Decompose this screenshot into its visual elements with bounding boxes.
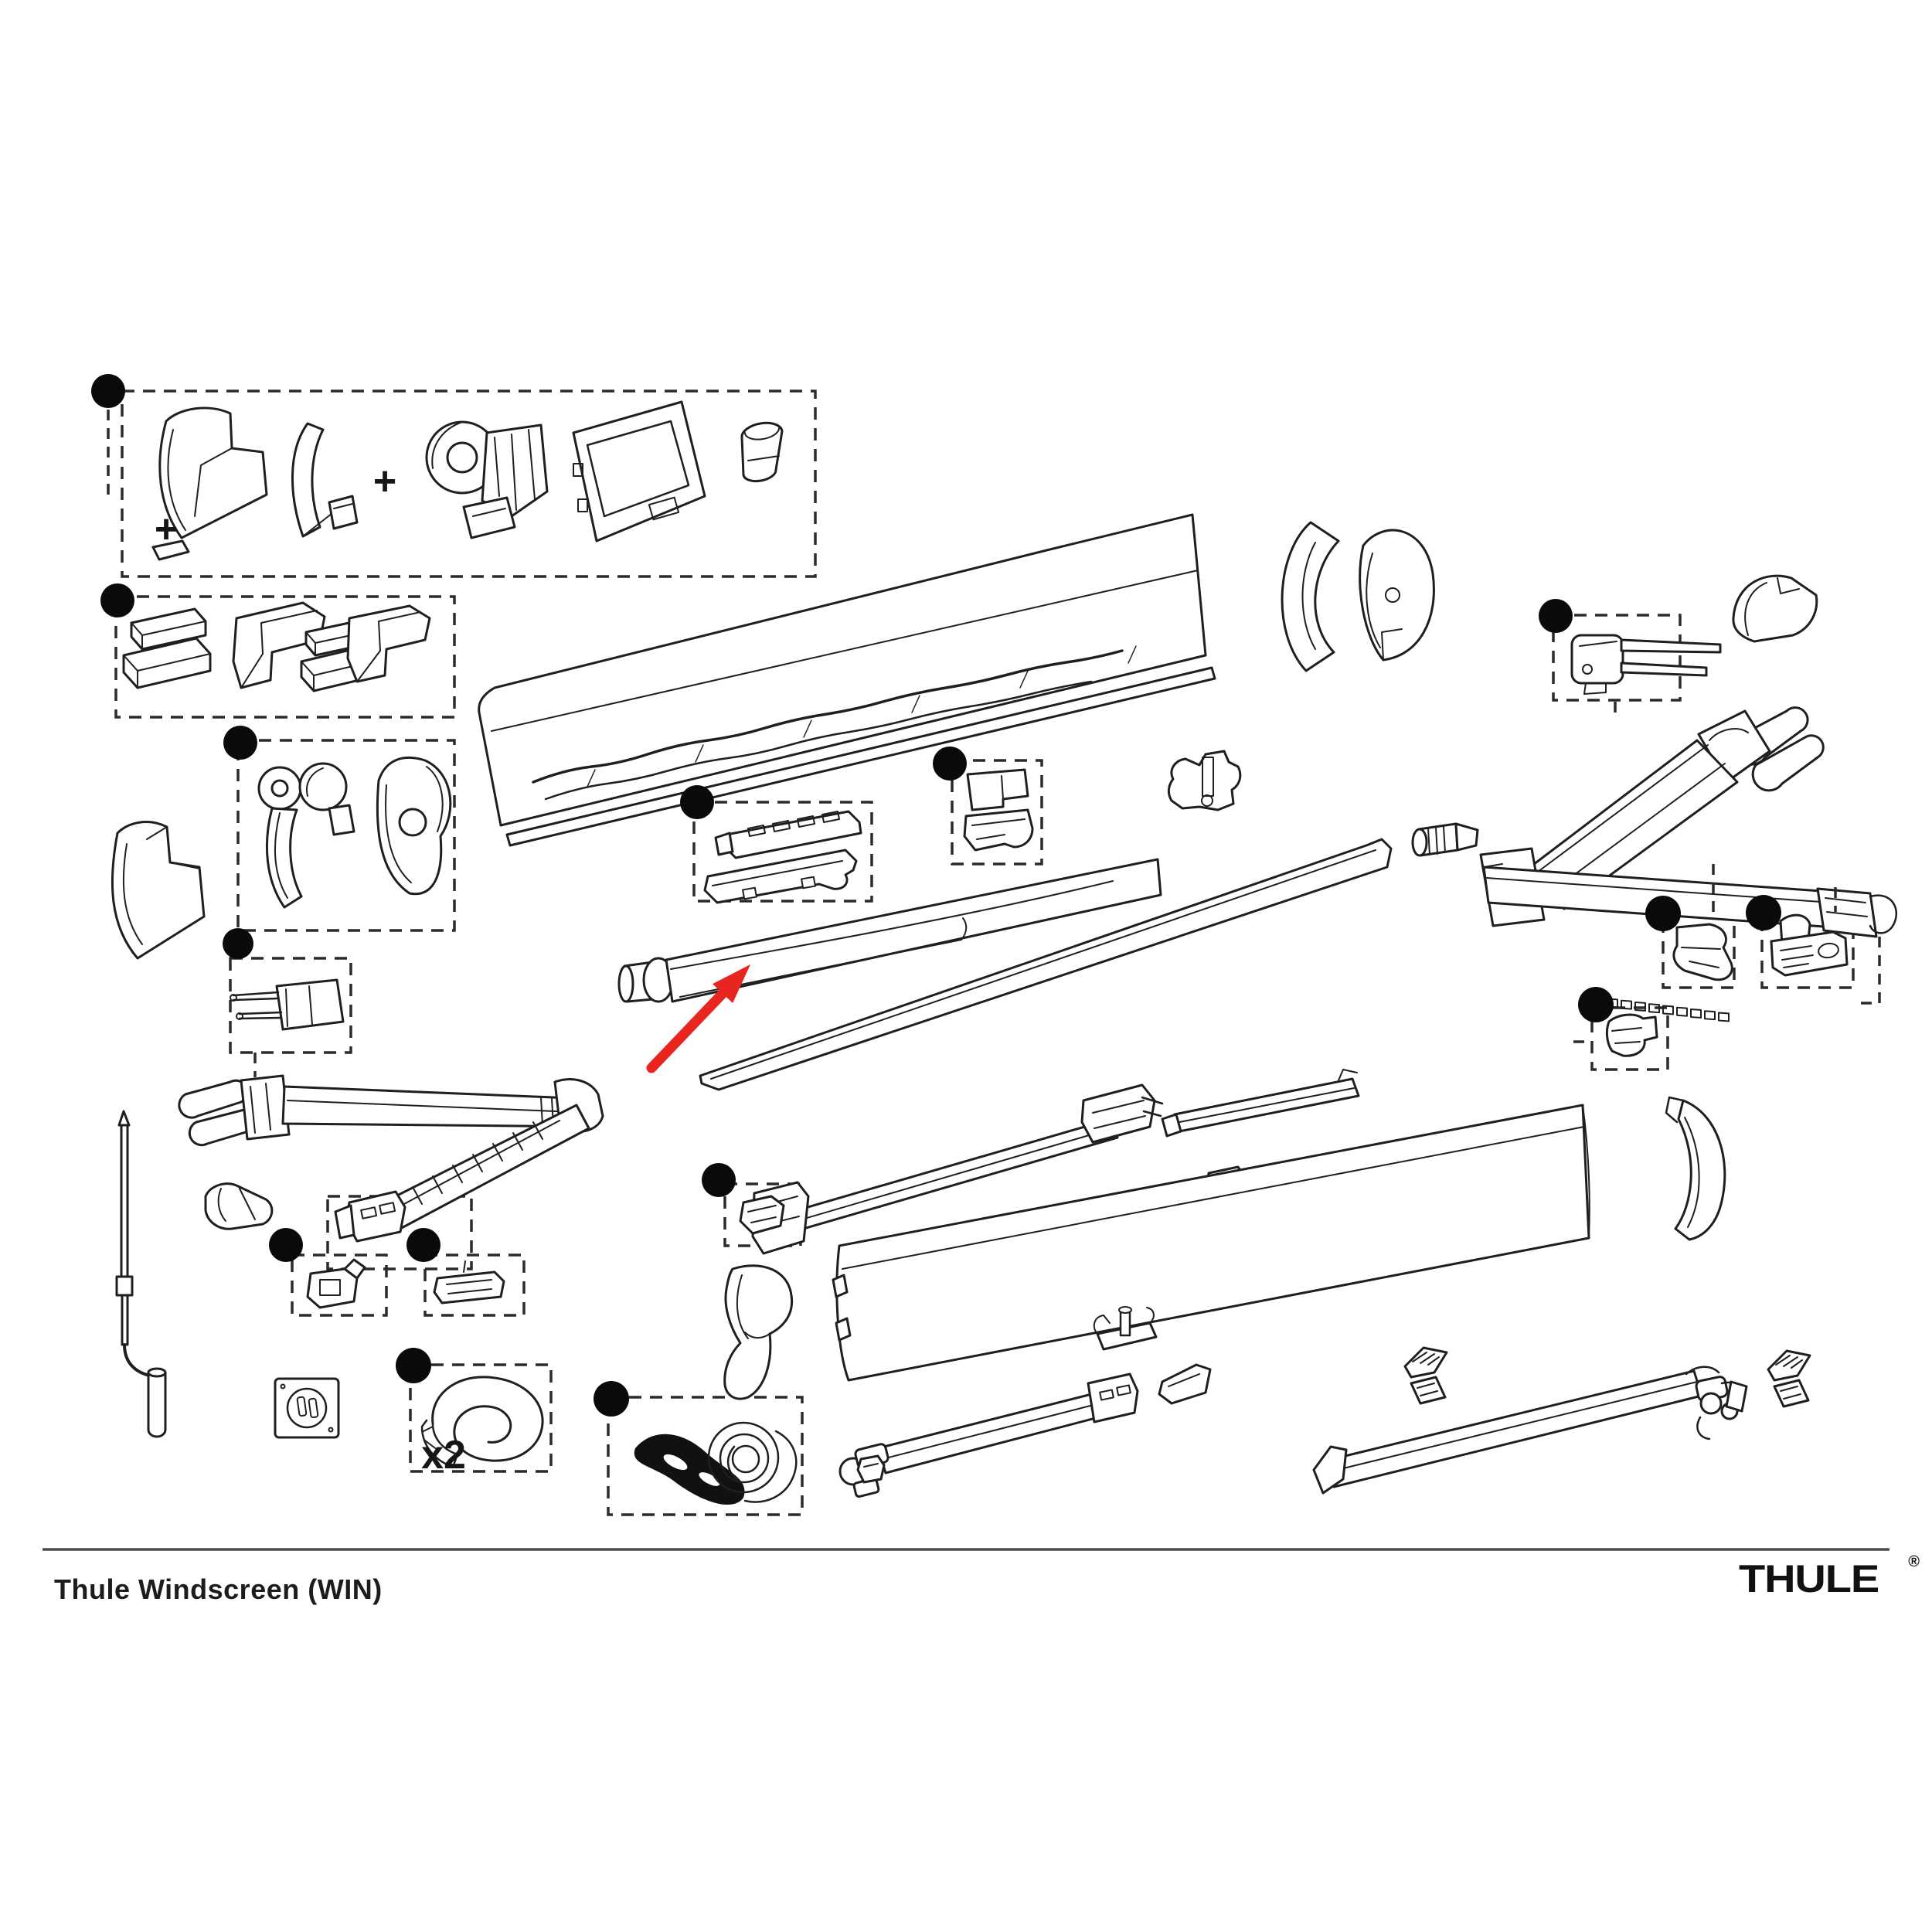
part-marker-13[interactable]	[406, 1228, 440, 1262]
part-cover-cap-top-right	[1733, 576, 1817, 641]
part-marker-7[interactable]	[1539, 599, 1573, 633]
part-wall-plate	[275, 1379, 338, 1437]
part-endcap-ring-1	[1282, 522, 1338, 671]
part-marker-2[interactable]	[100, 583, 134, 617]
logo-sub-text: SWEDEN	[1868, 1594, 1913, 1603]
quantity-label: x2	[421, 1433, 466, 1478]
diagram-canvas: ++x2	[0, 0, 1932, 1932]
part-fabric-guide	[725, 1266, 792, 1399]
part-slide-rail-2	[1162, 1070, 1359, 1136]
part-marker-12[interactable]	[269, 1228, 303, 1262]
part-marker-6[interactable]	[933, 747, 967, 781]
part-bracket-curved	[292, 423, 357, 536]
part-mount-bracket-right	[348, 606, 430, 682]
plus-sign: +	[373, 459, 396, 504]
part-clip-z-right	[1768, 1351, 1810, 1406]
part-marker-1[interactable]	[91, 374, 125, 408]
part-marker-14[interactable]	[396, 1348, 431, 1383]
part-wall-bracket	[1168, 751, 1240, 810]
part-marker-8[interactable]	[1645, 896, 1681, 931]
part-spring-arm-right	[1481, 708, 1896, 1022]
part-clip-12	[308, 1260, 365, 1308]
part-case-lid	[479, 515, 1215, 845]
part-clip-c	[1607, 1015, 1657, 1056]
part-clip-a	[1674, 924, 1732, 980]
part-gear-disc	[300, 764, 354, 835]
thule-logo: THULE ® SWEDEN	[1739, 1556, 1909, 1611]
part-pivot-pin	[1572, 635, 1720, 694]
part-marker-4[interactable]	[223, 928, 253, 959]
part-endcap-left-large	[112, 822, 204, 958]
part-seal-strap	[634, 1434, 745, 1505]
part-knob	[206, 1184, 272, 1230]
parts-diagram: ++x2 Thule Windscreen (WIN) THULE ® SWED…	[0, 0, 1932, 1932]
part-spline-pin	[230, 980, 343, 1029]
part-rafter-arm-1	[840, 1374, 1138, 1497]
part-motor-assembly	[427, 422, 547, 538]
part-clip-z-left	[1405, 1348, 1447, 1403]
part-marker-10[interactable]	[1578, 987, 1614, 1022]
part-cone-adapter	[1413, 824, 1478, 855]
part-marker-15[interactable]	[594, 1381, 629, 1417]
logo-wordmark: THULE	[1739, 1556, 1879, 1601]
part-marker-9[interactable]	[1746, 895, 1781, 930]
leader-line	[1855, 937, 1879, 1003]
part-clip-tiny	[858, 1456, 884, 1482]
part-marker-3[interactable]	[223, 726, 257, 760]
part-cover-curved-right	[1666, 1097, 1725, 1240]
part-marker-5[interactable]	[680, 785, 714, 819]
part-clip-6b	[964, 810, 1032, 850]
part-crank-handle	[117, 1111, 165, 1437]
part-rail-joint	[1159, 1365, 1210, 1403]
part-foam-pad-set-left	[124, 609, 210, 688]
part-arm-foot	[335, 1192, 405, 1241]
part-clip-6a	[968, 770, 1028, 810]
part-lead-rail	[833, 1105, 1590, 1380]
part-control-panel	[573, 402, 705, 541]
plus-sign: +	[155, 507, 178, 552]
part-slotted-strip-2	[705, 850, 856, 903]
registered-trademark: ®	[1908, 1553, 1920, 1571]
part-clutch-strap	[259, 767, 301, 907]
diagram-title: Thule Windscreen (WIN)	[54, 1573, 383, 1606]
part-rafter-arm-2	[1314, 1367, 1747, 1493]
part-marker-11[interactable]	[702, 1163, 736, 1197]
part-cylinder-adapter-small	[742, 423, 782, 481]
part-clip-13	[434, 1261, 504, 1303]
part-roller-tube	[619, 859, 1161, 1002]
part-endcap-ring-2	[1360, 530, 1434, 660]
part-gear-housing	[377, 757, 450, 893]
